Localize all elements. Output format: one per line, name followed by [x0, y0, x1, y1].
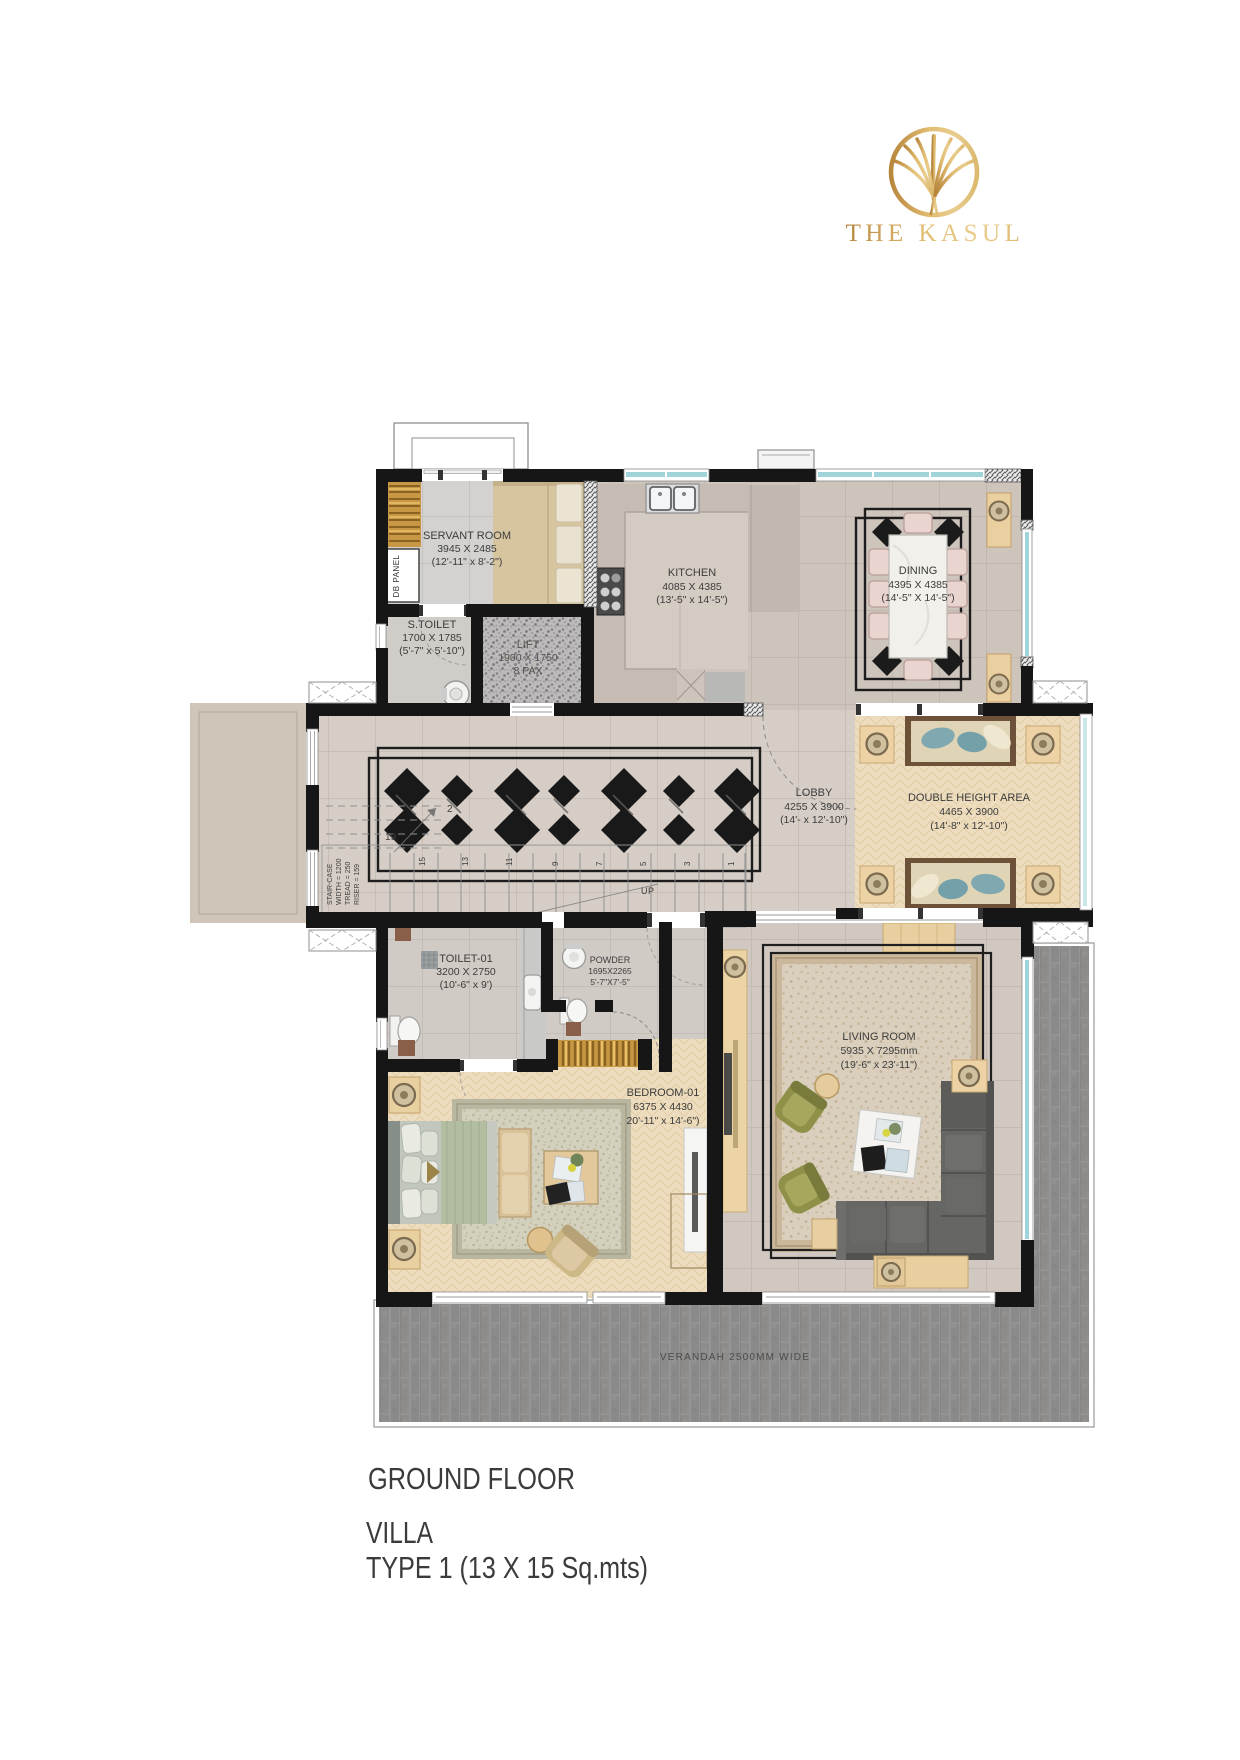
svg-text:1700 X 1785: 1700 X 1785	[402, 632, 462, 644]
svg-text:1: 1	[727, 861, 736, 866]
svg-text:(5'-7" x 5'-10"): (5'-7" x 5'-10")	[399, 645, 465, 657]
svg-text:5: 5	[639, 861, 648, 866]
svg-text:13: 13	[461, 857, 470, 866]
svg-text:4255 X 3900: 4255 X 3900	[784, 801, 844, 813]
svg-text:KITCHEN: KITCHEN	[668, 567, 716, 579]
svg-text:6375 X 4430: 6375 X 4430	[633, 1101, 693, 1113]
svg-text:POWDER: POWDER	[590, 955, 631, 965]
svg-text:DB PANEL: DB PANEL	[392, 554, 401, 597]
svg-text:5'-7"X7'-5": 5'-7"X7'-5"	[590, 977, 630, 987]
svg-text:(13'-5" x 14'-5"): (13'-5" x 14'-5")	[656, 594, 728, 606]
svg-text:7: 7	[595, 861, 604, 866]
svg-text:4465 X 3900: 4465 X 3900	[939, 806, 999, 818]
svg-text:DOUBLE HEIGHT AREA: DOUBLE HEIGHT AREA	[908, 792, 1031, 804]
svg-text:20'-11" x 14'-6"): 20'-11" x 14'-6")	[626, 1115, 699, 1127]
svg-text:15: 15	[418, 857, 427, 866]
svg-text:WIDTH = 1200: WIDTH = 1200	[336, 858, 343, 905]
svg-text:RISER = 159: RISER = 159	[354, 864, 361, 905]
svg-text:S.TOILET: S.TOILET	[408, 619, 457, 631]
svg-text:DINING: DINING	[899, 565, 938, 577]
svg-text:4085 X 4385: 4085 X 4385	[662, 581, 722, 593]
svg-text:LIVING ROOM: LIVING ROOM	[842, 1031, 915, 1043]
svg-text:(14'-8" x 12'-10"): (14'-8" x 12'-10")	[930, 820, 1007, 832]
svg-text:11: 11	[505, 857, 514, 866]
svg-text:VILLA: VILLA	[366, 1515, 433, 1550]
svg-text:TREAD = 250: TREAD = 250	[345, 862, 352, 905]
svg-text:(14'-5" X 14'-5"): (14'-5" X 14'-5")	[881, 592, 954, 604]
svg-text:TOILET-01: TOILET-01	[439, 953, 493, 965]
svg-text:(10'-6" x 9'): (10'-6" x 9')	[440, 979, 493, 991]
svg-text:9: 9	[551, 861, 560, 866]
svg-text:GROUND FLOOR: GROUND FLOOR	[368, 1461, 575, 1496]
svg-text:SERVANT ROOM: SERVANT ROOM	[423, 530, 511, 542]
svg-text:LOBBY: LOBBY	[796, 787, 833, 799]
svg-text:UP: UP	[641, 886, 655, 896]
svg-text:8 PAX: 8 PAX	[514, 665, 543, 677]
svg-text:1695X2265: 1695X2265	[588, 966, 632, 976]
svg-text:TYPE 1 (13 X 15 Sq.mts): TYPE 1 (13 X 15 Sq.mts)	[366, 1550, 648, 1585]
svg-text:5935 X 7295mm: 5935 X 7295mm	[840, 1045, 917, 1057]
svg-text:(14'- x 12'-10"): (14'- x 12'-10")	[780, 814, 848, 826]
svg-text:STAIR-CASE: STAIR-CASE	[327, 863, 334, 905]
svg-text:(19'-6" x 23'-11"): (19'-6" x 23'-11")	[841, 1059, 918, 1071]
svg-text:VERANDAH 2500MM WIDE: VERANDAH 2500MM WIDE	[660, 1352, 810, 1363]
svg-text:1900 X 1750: 1900 X 1750	[498, 652, 558, 664]
svg-text:19: 19	[385, 832, 397, 843]
svg-text:THE KASUL: THE KASUL	[846, 220, 1025, 247]
svg-text:4395 X 4385: 4395 X 4385	[888, 579, 948, 591]
svg-text:3945 X 2485: 3945 X 2485	[437, 543, 497, 555]
svg-text:(12'-11" x 8'-2"): (12'-11" x 8'-2")	[432, 556, 503, 568]
svg-text:3: 3	[683, 861, 692, 866]
svg-text:3200 X 2750: 3200 X 2750	[436, 966, 496, 978]
svg-text:BEDROOM-01: BEDROOM-01	[627, 1087, 700, 1099]
svg-text:LIFT: LIFT	[517, 639, 540, 651]
svg-text:2: 2	[447, 804, 453, 815]
